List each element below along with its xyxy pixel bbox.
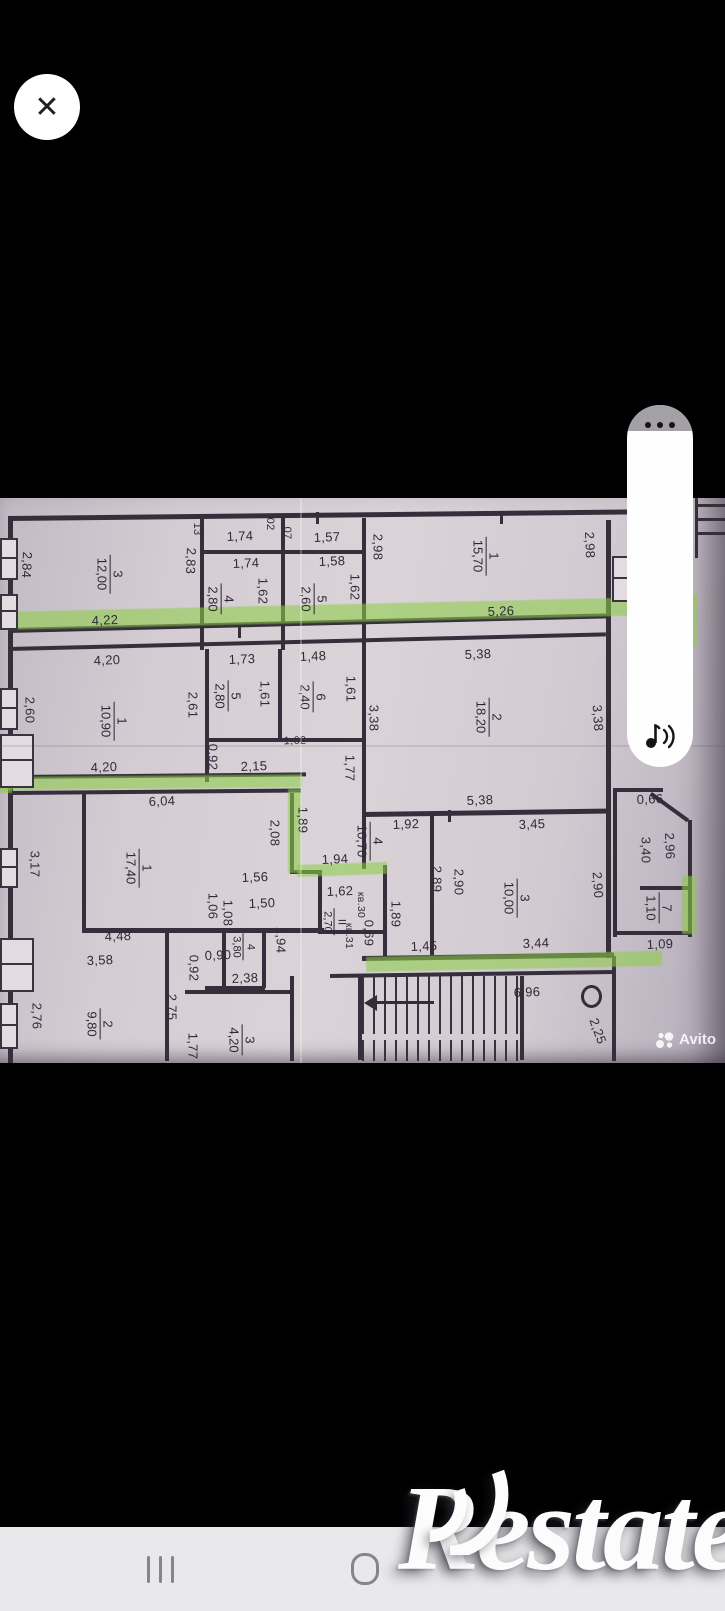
recents-icon xyxy=(171,1556,174,1583)
dimension-label: 5,26 xyxy=(487,603,514,619)
dimension-label: 1,62 xyxy=(326,883,353,899)
floorplan-photo[interactable]: 1,741,571,741,581302072,842,832,982,984,… xyxy=(0,498,725,1063)
dimension-label: 0,92 xyxy=(206,744,221,771)
wall-segment xyxy=(290,976,294,1061)
dot xyxy=(657,422,663,428)
dimension-label: 2,98 xyxy=(371,534,386,561)
window-symbol xyxy=(0,1003,18,1049)
music-note-sound-icon xyxy=(641,717,679,753)
avito-watermark-text: Avito xyxy=(679,1031,716,1048)
dimension-label: 2,25 xyxy=(586,1016,609,1046)
wall-segment xyxy=(695,504,725,507)
wall-segment xyxy=(185,990,292,994)
room-area: 10,90 xyxy=(99,702,115,741)
wall-segment xyxy=(383,865,387,960)
paper-crease xyxy=(0,745,725,747)
dimension-label: 1,73 xyxy=(228,651,255,667)
staircase-symbol xyxy=(376,1001,434,1004)
wall-segment xyxy=(362,518,366,815)
room-area: 1,10 xyxy=(644,892,660,923)
dimension-label: 1,92 xyxy=(392,816,419,832)
room-label: 52,80 xyxy=(213,680,242,711)
room-area: 2,80 xyxy=(206,583,222,614)
dimension-label: 2,75 xyxy=(165,994,180,1021)
room-label: 71,10 xyxy=(644,892,673,923)
room-label: 312,00 xyxy=(95,555,124,594)
dimension-label: 02 xyxy=(264,518,276,531)
dimension-label: 1,50 xyxy=(248,895,275,911)
wall-segment xyxy=(316,512,319,524)
dimension-label: 2,08 xyxy=(268,820,283,847)
dimension-label: 2,15 xyxy=(240,758,267,774)
sound-button[interactable] xyxy=(627,717,693,753)
wall-segment xyxy=(278,649,282,740)
room-label: 29,80 xyxy=(85,1008,114,1039)
room-label: 52,60 xyxy=(299,583,328,614)
dimension-label: 0,90 xyxy=(204,947,231,963)
dimension-label: 2,90 xyxy=(590,871,607,898)
wall-segment xyxy=(500,514,503,524)
highlighter-mark xyxy=(682,876,696,934)
room-area: 17,40 xyxy=(124,849,140,888)
dimension-label: 2,96 xyxy=(662,832,678,859)
dimension-label: 1,61 xyxy=(344,676,359,703)
room-label: 115,70 xyxy=(471,537,500,576)
dimension-label: 1,58 xyxy=(318,553,345,569)
room-area: 4,20 xyxy=(227,1024,243,1055)
dimension-label: 2,38 xyxy=(231,970,258,986)
wall-segment xyxy=(8,509,692,521)
dimension-label: 1,45 xyxy=(410,938,437,954)
dimension-label: 1,57 xyxy=(313,529,340,545)
room-area: 15,70 xyxy=(471,537,487,576)
room-label: 110,90 xyxy=(99,702,128,741)
room-number: 2 xyxy=(101,1008,115,1039)
window-symbol xyxy=(0,938,34,992)
room-number: 7 xyxy=(660,892,674,923)
dimension-label: 3,38 xyxy=(367,705,382,732)
dimension-label: 4,20 xyxy=(93,652,120,668)
wall-segment xyxy=(606,520,611,958)
room-label: 410,70 xyxy=(355,822,384,861)
dimension-label: 1,94 xyxy=(321,851,348,867)
photo-viewer-screen: ✕ 1,741,571,741,581302072,842,832,982,98… xyxy=(0,0,725,1611)
room-area: 2,80 xyxy=(213,680,229,711)
wall-segment xyxy=(205,986,265,990)
dimension-label: 4,22 xyxy=(91,612,118,628)
recents-icon xyxy=(147,1556,150,1583)
column-symbol xyxy=(581,985,602,1008)
dimension-label: 1,74 xyxy=(226,528,253,544)
room-area: 3,80 xyxy=(230,933,244,960)
more-options-button[interactable] xyxy=(627,422,693,428)
wall-segment xyxy=(262,930,266,988)
restate-logo-waves xyxy=(412,1440,532,1555)
staircase-symbol xyxy=(362,976,518,1034)
dimension-label: 4,48 xyxy=(104,928,131,944)
dimension-label: 2,98 xyxy=(582,531,598,558)
dimension-label: 1,89 xyxy=(389,901,404,928)
room-number: 5 xyxy=(229,680,243,711)
dimension-label: 1,08 xyxy=(221,900,236,927)
dimension-label: 6,04 xyxy=(148,793,175,809)
avito-watermark: Avito xyxy=(655,1030,716,1049)
wall-segment xyxy=(613,931,692,935)
dimension-label: 1,77 xyxy=(343,755,358,782)
paper-crease xyxy=(300,498,302,1063)
staircase-symbol xyxy=(362,1040,518,1061)
dimension-label: 2,89 xyxy=(430,866,445,893)
dimension-label: 5,38 xyxy=(466,792,493,808)
dimension-label: 0,66 xyxy=(636,791,663,807)
recent-apps-button[interactable] xyxy=(147,1556,174,1583)
dimension-label: 1,77 xyxy=(186,1033,201,1060)
dimension-label: 1,62 xyxy=(256,578,271,605)
home-button[interactable] xyxy=(351,1553,379,1585)
window-symbol xyxy=(0,848,18,888)
window-symbol xyxy=(0,734,34,788)
room-number: 4 xyxy=(371,822,385,861)
dimension-label: 3,17 xyxy=(28,851,43,878)
room-number: 1 xyxy=(115,702,129,741)
room-number: 2 xyxy=(490,698,504,737)
room-number: 3 xyxy=(111,555,125,594)
room-number: 1 xyxy=(487,537,501,576)
dimension-label: 2,76 xyxy=(30,1003,45,1030)
room-number: 3 xyxy=(518,879,532,918)
room-number: 4 xyxy=(222,583,236,614)
room-area: 18,20 xyxy=(474,698,490,737)
close-icon: ✕ xyxy=(34,90,59,125)
dimension-label: 07 xyxy=(281,527,293,540)
room-label: 42,80 xyxy=(206,583,235,614)
dimension-label: 13 xyxy=(191,523,203,536)
room-label: 34,20 xyxy=(227,1024,256,1055)
wall-segment xyxy=(613,790,617,937)
dimension-label: 1,94 xyxy=(274,927,289,954)
room-label: 218,20 xyxy=(474,698,503,737)
room-number: 4 xyxy=(244,933,256,960)
dimension-label: 2,84 xyxy=(19,551,35,578)
dimension-label: 1,89 xyxy=(296,807,311,834)
room-label: 310,00 xyxy=(502,879,531,918)
wall-segment xyxy=(82,793,86,931)
dot xyxy=(645,422,651,428)
wall-segment xyxy=(448,810,451,822)
dimension-label: 3,45 xyxy=(518,816,545,832)
wall-segment xyxy=(612,956,616,1061)
dimension-label: кв.30 xyxy=(355,892,367,918)
dimension-label: 3,58 xyxy=(86,952,113,968)
room-number: II xyxy=(335,908,347,935)
window-symbol xyxy=(0,594,18,630)
room-area: 10,70 xyxy=(355,822,371,861)
wall-segment xyxy=(695,532,725,535)
dimension-label: 6,96 xyxy=(513,984,540,1000)
dimension-label: 1,74 xyxy=(232,555,259,571)
dimension-label: 3,40 xyxy=(639,837,654,864)
recents-icon xyxy=(159,1556,162,1583)
wall-segment xyxy=(695,498,698,558)
room-number: 5 xyxy=(315,583,329,614)
wall-segment xyxy=(200,518,204,650)
room-label: 43,80 xyxy=(230,933,255,960)
dimension-label: 0,69 xyxy=(362,920,377,947)
room-area: 9,80 xyxy=(85,1008,101,1039)
window-symbol xyxy=(0,688,18,730)
dimension-label: 2,90 xyxy=(452,869,467,896)
wall-segment xyxy=(238,624,241,638)
dimension-label: 3,44 xyxy=(522,935,549,951)
room-label: 62,40 xyxy=(298,681,327,712)
dimension-label: 0,92 xyxy=(187,955,202,982)
wall-segment xyxy=(695,518,725,521)
dimension-label: 3,38 xyxy=(590,704,607,731)
dimension-label: 1,62 xyxy=(348,574,363,601)
window-symbol xyxy=(0,538,18,580)
close-button[interactable]: ✕ xyxy=(14,74,80,140)
dot xyxy=(669,422,675,428)
room-area: 12,00 xyxy=(95,555,111,594)
room-number: 3 xyxy=(243,1024,257,1055)
dimension-label: 2,60 xyxy=(23,697,38,724)
highlighter-mark xyxy=(0,774,302,790)
dimension-label: 1,09 xyxy=(646,936,673,952)
dimension-label: 1,06 xyxy=(206,893,221,920)
dimension-label: 2,61 xyxy=(186,692,201,719)
dimension-label: 1,61 xyxy=(258,681,273,708)
dimension-label: 1,56 xyxy=(241,869,268,885)
room-label: 117,40 xyxy=(124,849,153,888)
dimension-label: 1,48 xyxy=(299,648,326,664)
room-area: 2,70 xyxy=(321,908,335,935)
floating-action-pill xyxy=(627,405,693,767)
room-label: II2,70 xyxy=(321,908,346,935)
dimension-label: 2,83 xyxy=(183,547,199,574)
dimension-label: 4,20 xyxy=(90,759,117,775)
avito-logo-icon xyxy=(655,1030,674,1049)
room-number: 1 xyxy=(140,849,154,888)
dimension-label: 5,38 xyxy=(464,646,491,662)
room-number: 6 xyxy=(314,681,328,712)
room-area: 10,00 xyxy=(502,879,518,918)
